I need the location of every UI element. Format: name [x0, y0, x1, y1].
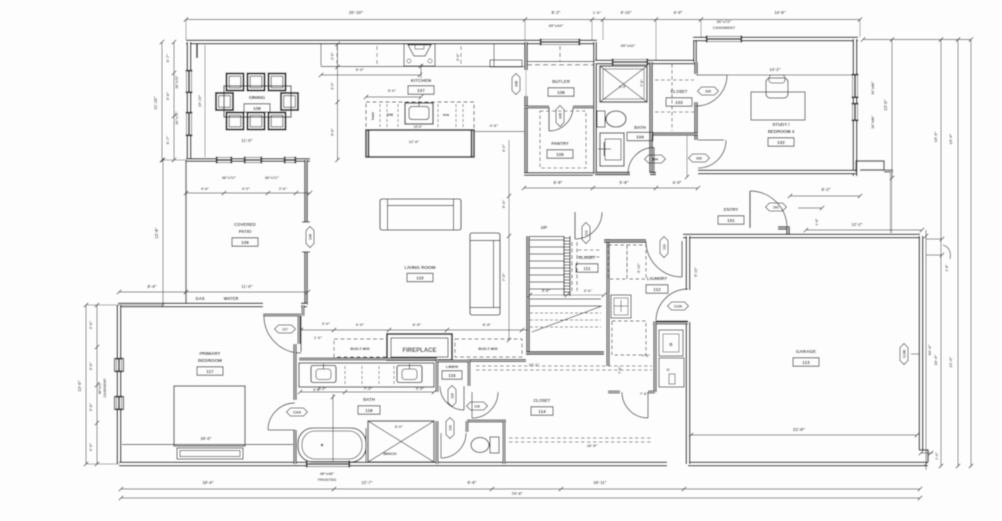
svg-text:111: 111	[584, 230, 588, 236]
svg-text:2'-3": 2'-3"	[416, 386, 425, 391]
svg-text:PATIO: PATIO	[239, 229, 252, 234]
svg-text:109: 109	[241, 240, 249, 245]
svg-text:16'-4": 16'-4"	[933, 354, 938, 365]
svg-text:112: 112	[653, 287, 661, 292]
svg-text:PRIMARY: PRIMARY	[199, 351, 220, 356]
svg-text:36"x72": 36"x72"	[265, 176, 279, 180]
svg-text:115: 115	[450, 393, 454, 399]
svg-text:108: 108	[514, 81, 518, 87]
svg-text:107: 107	[417, 88, 425, 93]
svg-text:105: 105	[556, 152, 564, 157]
svg-text:4'-0": 4'-0"	[356, 322, 365, 327]
svg-text:BATH: BATH	[634, 125, 646, 130]
svg-text:106: 106	[557, 90, 565, 95]
svg-text:11'-10": 11'-10"	[153, 96, 158, 109]
svg-text:115: 115	[448, 373, 456, 378]
svg-text:104: 104	[652, 157, 658, 161]
svg-text:101: 101	[727, 218, 735, 223]
svg-text:8'-4": 8'-4"	[147, 284, 156, 289]
svg-text:LAUNDRY: LAUNDRY	[647, 276, 668, 281]
svg-text:21'-0": 21'-0"	[793, 427, 805, 432]
svg-text:113: 113	[802, 360, 810, 365]
svg-text:4'-6": 4'-6"	[88, 321, 93, 330]
svg-text:113A: 113A	[674, 304, 683, 308]
svg-text:113B: 113B	[902, 349, 906, 358]
svg-text:PANTRY: PANTRY	[551, 141, 569, 146]
svg-text:114: 114	[538, 409, 546, 414]
svg-text:9'-0": 9'-0"	[356, 67, 365, 72]
svg-text:CASEMENT: CASEMENT	[713, 25, 736, 30]
svg-text:3'-6": 3'-6"	[165, 92, 170, 101]
svg-text:4'-0": 4'-0"	[88, 443, 93, 452]
svg-text:116: 116	[365, 408, 373, 413]
svg-text:FROSTED: FROSTED	[318, 477, 337, 482]
svg-text:7'-6": 7'-6"	[640, 391, 649, 396]
svg-text:12'-1": 12'-1"	[529, 362, 540, 367]
svg-text:16'-4": 16'-4"	[202, 480, 213, 485]
svg-text:4'-0": 4'-0"	[673, 10, 682, 15]
svg-text:8'-2": 8'-2"	[551, 10, 560, 15]
svg-text:36"x72": 36"x72"	[717, 19, 732, 24]
svg-text:B: B	[669, 342, 672, 347]
svg-text:CLOSET: CLOSET	[671, 89, 688, 94]
svg-text:5'-5": 5'-5"	[619, 85, 627, 89]
svg-text:CLOSET: CLOSET	[579, 255, 596, 260]
svg-text:5'-0": 5'-0"	[388, 88, 397, 93]
svg-text:21'-0": 21'-0"	[948, 356, 953, 367]
svg-text:117: 117	[282, 327, 288, 331]
svg-text:12'-8": 12'-8"	[154, 227, 159, 238]
svg-text:112: 112	[662, 244, 666, 250]
svg-text:116: 116	[474, 404, 480, 408]
svg-text:6'-0": 6'-0"	[395, 425, 403, 429]
svg-text:36"x72": 36"x72"	[98, 381, 102, 394]
svg-text:36"x96": 36"x96"	[871, 81, 875, 95]
svg-text:1'-0": 1'-0"	[593, 10, 602, 15]
svg-text:UP: UP	[541, 225, 547, 230]
svg-text:BEDROOM 4: BEDROOM 4	[768, 129, 795, 134]
svg-text:36"x72": 36"x72"	[175, 75, 179, 89]
svg-text:14'-2": 14'-2"	[769, 67, 780, 72]
svg-text:30'-4": 30'-4"	[927, 344, 932, 355]
svg-text:DW: DW	[387, 113, 394, 117]
svg-text:3'-6": 3'-6"	[88, 362, 93, 371]
svg-text:6'-0": 6'-0"	[502, 144, 506, 152]
svg-text:104: 104	[636, 135, 644, 140]
svg-text:16'-11": 16'-11"	[593, 480, 606, 485]
svg-text:36"x72": 36"x72"	[222, 176, 236, 180]
svg-text:LINEN: LINEN	[446, 364, 458, 369]
svg-text:15'-4": 15'-4"	[948, 133, 953, 144]
svg-text:45"x42": 45"x42"	[549, 23, 564, 28]
svg-text:7'-0": 7'-0"	[642, 353, 651, 358]
svg-text:BUTLER: BUTLER	[552, 79, 571, 84]
svg-text:DINING: DINING	[249, 95, 266, 100]
svg-text:2'-6": 2'-6"	[456, 53, 460, 61]
svg-text:10'-10": 10'-10"	[198, 95, 202, 108]
svg-text:3'-0": 3'-0"	[331, 82, 335, 90]
svg-text:1'-6": 1'-6"	[815, 218, 819, 226]
svg-text:CASEMENT: CASEMENT	[103, 378, 107, 398]
svg-text:8'-8": 8'-8"	[483, 322, 492, 327]
svg-text:KITCHEN: KITCHEN	[411, 78, 432, 83]
svg-text:12'-7": 12'-7"	[361, 480, 372, 485]
svg-text:13'-0": 13'-0"	[77, 380, 82, 391]
svg-text:5'-10": 5'-10"	[637, 263, 641, 273]
svg-text:116: 116	[448, 425, 452, 431]
svg-text:111: 111	[583, 266, 591, 271]
svg-text:13'-0": 13'-0"	[883, 99, 888, 110]
svg-text:102: 102	[777, 140, 785, 145]
svg-text:mw: mw	[443, 113, 449, 117]
svg-text:8'-5": 8'-5"	[413, 322, 422, 327]
svg-text:101: 101	[773, 205, 779, 209]
svg-text:3'-0": 3'-0"	[322, 321, 331, 326]
svg-text:1'-0": 1'-0"	[314, 335, 323, 340]
svg-text:3'-6": 3'-6"	[542, 288, 551, 293]
svg-text:4'-0": 4'-0"	[242, 187, 250, 191]
svg-text:4'-6": 4'-6"	[490, 123, 499, 128]
svg-text:FIREPLACE: FIREPLACE	[402, 348, 436, 354]
svg-text:116A: 116A	[293, 410, 302, 414]
svg-text:36"x96": 36"x96"	[871, 115, 875, 129]
svg-text:2'-6": 2'-6"	[279, 187, 287, 191]
svg-text:5'-6": 5'-6"	[619, 180, 628, 185]
svg-text:105: 105	[558, 113, 562, 119]
svg-text:6'-7": 6'-7"	[165, 136, 170, 145]
svg-text:CLOSET: CLOSET	[534, 398, 551, 403]
svg-text:110: 110	[416, 276, 424, 281]
svg-text:6'-7": 6'-7"	[165, 54, 170, 63]
svg-text:7'-5": 7'-5"	[501, 273, 506, 282]
svg-text:4'-8": 4'-8"	[201, 187, 209, 191]
svg-text:trash: trash	[371, 112, 375, 120]
svg-text:109: 109	[308, 234, 312, 240]
svg-text:BUILT-INS: BUILT-INS	[350, 346, 370, 351]
svg-text:18'-5": 18'-5"	[587, 443, 598, 448]
svg-text:48"x48": 48"x48"	[320, 471, 335, 476]
svg-text:GARAGE: GARAGE	[796, 349, 816, 354]
svg-text:1'-0": 1'-0"	[935, 452, 939, 460]
svg-text:BATH: BATH	[363, 397, 375, 402]
svg-text:12'-2": 12'-2"	[851, 222, 862, 227]
svg-text:108: 108	[253, 106, 261, 111]
svg-text:4'-10": 4'-10"	[620, 10, 631, 15]
svg-text:103: 103	[675, 100, 683, 105]
svg-text:7'-3": 7'-3"	[364, 386, 373, 391]
svg-text:10'-0": 10'-0"	[414, 125, 423, 129]
svg-text:COVERED: COVERED	[234, 222, 256, 227]
svg-text:BENCH: BENCH	[383, 452, 397, 456]
svg-text:2'-6": 2'-6"	[331, 52, 335, 60]
svg-text:4'-0": 4'-0"	[672, 180, 681, 185]
svg-text:7'-6": 7'-6"	[640, 79, 644, 87]
svg-text:20'-10": 20'-10"	[349, 10, 363, 15]
svg-text:8'-2": 8'-2"	[821, 187, 830, 192]
svg-text:WATER: WATER	[224, 296, 239, 301]
svg-text:36"x72": 36"x72"	[175, 111, 179, 125]
svg-text:6'-6": 6'-6"	[553, 180, 562, 185]
svg-text:5'-10": 5'-10"	[694, 267, 698, 277]
svg-text:3'-0": 3'-0"	[313, 388, 321, 392]
svg-text:74'-4": 74'-4"	[511, 491, 522, 496]
svg-text:GAS: GAS	[195, 296, 204, 301]
svg-text:1'-6": 1'-6"	[945, 264, 949, 272]
svg-text:3'-6": 3'-6"	[584, 288, 593, 293]
svg-text:STUDY /: STUDY /	[772, 122, 790, 127]
svg-text:117: 117	[206, 369, 214, 374]
svg-text:3'-6": 3'-6"	[88, 403, 93, 412]
svg-text:11'-0": 11'-0"	[241, 138, 252, 143]
svg-text:103: 103	[705, 89, 711, 93]
svg-text:LIVING ROOM: LIVING ROOM	[405, 265, 436, 270]
svg-text:5'-4": 5'-4"	[501, 200, 506, 209]
svg-text:7'-6": 7'-6"	[618, 366, 622, 374]
svg-text:45"x42": 45"x42"	[621, 43, 636, 48]
svg-text:O: O	[667, 368, 670, 372]
svg-text:14'-8": 14'-8"	[774, 10, 785, 15]
svg-text:12'-6": 12'-6"	[409, 139, 420, 144]
svg-text:11'-0": 11'-0"	[241, 284, 252, 289]
svg-text:15'-4": 15'-4"	[933, 131, 938, 142]
svg-text:9'-6": 9'-6"	[331, 128, 335, 136]
svg-text:16'-0": 16'-0"	[200, 436, 211, 441]
svg-text:102: 102	[696, 156, 702, 160]
svg-text:ENTRY: ENTRY	[724, 207, 739, 212]
svg-text:6'-6": 6'-6"	[467, 480, 476, 485]
svg-text:BEDROOM: BEDROOM	[198, 358, 222, 363]
svg-text:BUILT-INS: BUILT-INS	[478, 346, 498, 351]
